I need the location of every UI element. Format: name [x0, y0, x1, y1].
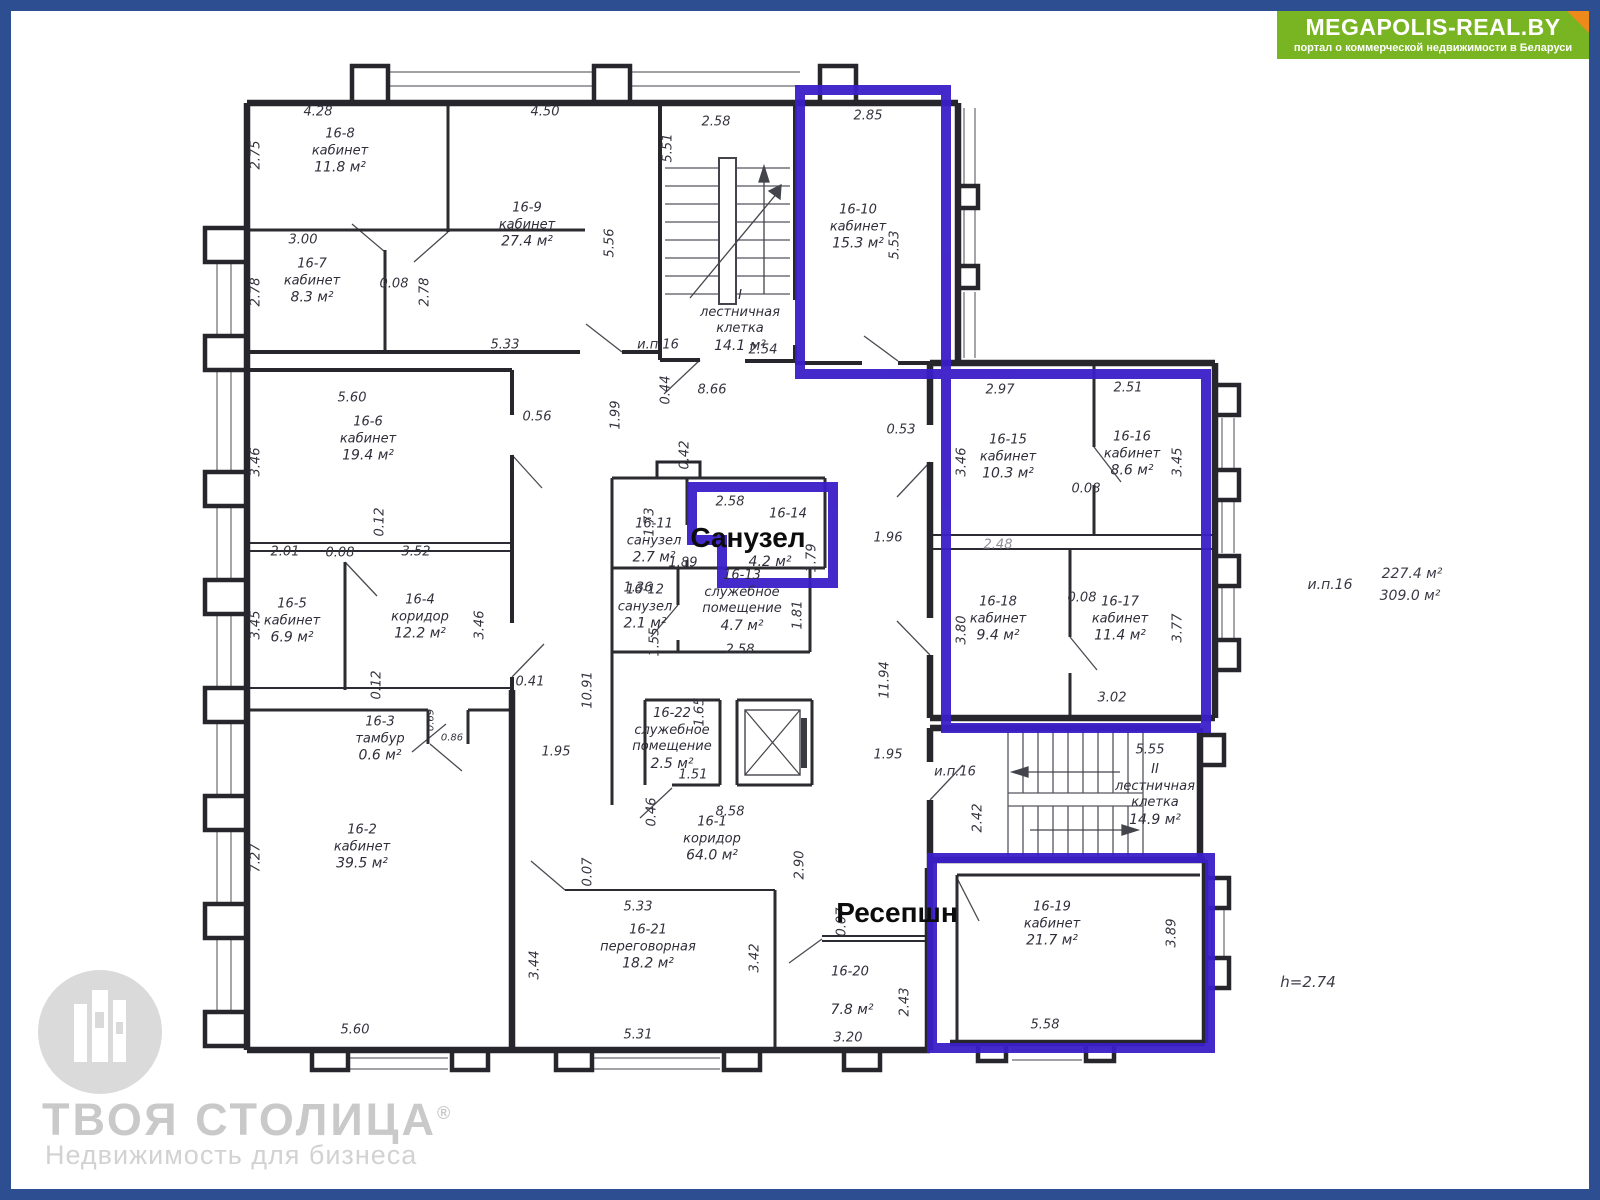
dimension-label: 1.89: [669, 556, 698, 571]
side-area-top: 227.4 м²: [1382, 566, 1443, 582]
dimension-label: 2.42: [971, 804, 986, 833]
dimension-label: 3.00: [289, 233, 318, 248]
dimension-label: 8.58: [716, 805, 745, 820]
dimension-label: 0.44: [659, 376, 674, 405]
room-label-16-7: 16-7кабинет8.3 м²: [284, 256, 340, 307]
dimension-label: 0.07: [581, 858, 596, 887]
dimension-label: 3.52: [402, 545, 431, 560]
dimension-label: 1.51: [679, 768, 708, 783]
dimension-label: 5.58: [1031, 1018, 1060, 1033]
dimension-label: 5.55: [1136, 743, 1165, 758]
dimension-label: 5.51: [661, 134, 676, 163]
dimension-label: 0.69: [426, 709, 437, 731]
dimension-label: 5.60: [338, 391, 367, 406]
dimension-label: 0.08: [1068, 591, 1097, 606]
room-label-16-21: 16-21переговорная18.2 м²: [600, 922, 696, 973]
dimension-label: 0.12: [373, 508, 388, 537]
dimension-label: 5.33: [491, 338, 520, 353]
room-label-16-3: 16-3тамбур0.6 м²: [355, 714, 404, 765]
dimension-label: 1.36: [624, 581, 653, 596]
room-label-16-16: 16-16кабинет8.6 м²: [1104, 429, 1160, 480]
logo-title: MEGAPOLIS-REAL.BY: [1305, 16, 1560, 39]
dimension-label: 2.58: [726, 643, 755, 658]
height-note: h=2.74: [1280, 973, 1335, 991]
dimension-label: 2.58: [716, 495, 745, 510]
room-label-16-18: 16-18кабинет9.4 м²: [970, 594, 1026, 645]
room-label-16-8: 16-8кабинет11.8 м²: [312, 126, 368, 177]
elevator-shaft: [745, 710, 807, 775]
dimension-label: 2.78: [249, 278, 264, 307]
sanuzel-overlay-label: Санузел: [690, 522, 805, 554]
dimension-label: 10.91: [581, 671, 596, 708]
room-label-16-15: 16-15кабинет10.3 м²: [980, 432, 1036, 483]
room-label-16-1: 16-1коридор64.0 м²: [683, 814, 741, 865]
dimension-label: 3.77: [1171, 614, 1186, 643]
room-label-16-13: 16-13служебноепомещение4.7 м²: [702, 568, 781, 636]
dimension-label: 2.58: [702, 115, 731, 130]
dimension-label: 1.96: [874, 531, 903, 546]
dimension-label: 3.20: [834, 1031, 863, 1046]
room-label-16-20-id: 16-20: [831, 965, 869, 980]
dimension-label: 0.41: [516, 675, 545, 690]
dimension-label: 2.85: [854, 109, 883, 124]
dimension-label: 3.44: [528, 951, 543, 980]
dimension-label: 2.78: [418, 278, 433, 307]
dimension-label: 3.02: [1098, 691, 1127, 706]
room-label-16-9: 16-9кабинет27.4 м²: [499, 200, 555, 251]
room-label-16-4: 16-4коридор12.2 м²: [391, 592, 449, 643]
dimension-label: 0.46: [645, 798, 660, 827]
dimension-label: 5.60: [341, 1023, 370, 1038]
staircase-1-stringer: [719, 158, 736, 304]
dimension-label: 3.42: [748, 944, 763, 973]
dimension-label: 2.75: [249, 141, 264, 170]
dimension-label: 3.46: [249, 448, 264, 477]
dimension-label: 3.45: [1171, 448, 1186, 477]
dimension-label: 0.86: [441, 733, 463, 744]
dimension-label: 0.56: [523, 410, 552, 425]
logo-subtitle: портал о коммерческой недвижимости в Бел…: [1294, 42, 1572, 54]
dimension-label: 0.08: [380, 277, 409, 292]
dimension-label: 0.12: [370, 671, 385, 700]
dimension-label: 1.81: [791, 601, 806, 630]
megapolis-logo[interactable]: MEGAPOLIS-REAL.BY портал о коммерческой …: [1277, 11, 1589, 59]
dimension-label: 0.53: [887, 423, 916, 438]
dimension-label: 4.28: [304, 105, 333, 120]
dimension-label: 1.65: [693, 698, 708, 727]
side-area-bottom: 309.0 м²: [1380, 588, 1441, 604]
floor-plan-page: 16-8кабинет11.8 м² 16-9кабинет27.4 м² 16…: [0, 0, 1600, 1200]
watermark-logo-icon: [38, 970, 162, 1094]
dimension-label: 2.97: [986, 383, 1015, 398]
room-label-16-5: 16-5кабинет6.9 м²: [264, 596, 320, 647]
dimension-label: 1.79: [805, 544, 820, 573]
dimension-label: 1.95: [542, 745, 571, 760]
dimension-label: 5.53: [888, 231, 903, 260]
dimension-label: и.п.16: [934, 765, 976, 780]
dimension-label: 5.56: [603, 229, 618, 258]
registered-mark-icon: ®: [437, 1103, 453, 1123]
dimension-label: 4.50: [531, 105, 560, 120]
logo-corner-fold-icon: [1567, 11, 1589, 33]
dimension-label: 2.43: [898, 988, 913, 1017]
room-label-16-19: 16-19кабинет21.7 м²: [1024, 899, 1080, 950]
room-label-16-20-area: 7.8 м²: [831, 1002, 874, 1018]
room-label-16-6: 16-6кабинет19.4 м²: [340, 414, 396, 465]
dimension-label: 0.42: [678, 441, 693, 470]
watermark-brand: ТВОЯ СТОЛИЦА®: [42, 1094, 453, 1146]
dimension-label: 3.46: [473, 611, 488, 640]
dimension-label: 11.94: [878, 661, 893, 698]
reception-overlay-label: Ресепшн: [836, 897, 958, 929]
room-label-staircase-2: IIлестничнаяклетка14.9 м²: [1115, 762, 1195, 830]
dimension-label: и.п.16: [637, 338, 679, 353]
dimension-label: 1.99: [609, 401, 624, 430]
dimension-label: 0.08: [326, 546, 355, 561]
room-label-16-17: 16-17кабинет11.4 м²: [1092, 594, 1148, 645]
dimension-label: 2.48: [984, 538, 1013, 553]
dimension-label: 3.80: [955, 616, 970, 645]
dimension-label: 0.08: [1072, 482, 1101, 497]
dimension-label: 3.45: [249, 611, 264, 640]
dimension-label: 2.90: [793, 851, 808, 880]
dimension-label: 2.01: [271, 545, 300, 560]
dimension-label: 3.46: [955, 448, 970, 477]
dimension-label: 8.66: [698, 383, 727, 398]
dimension-label: 5.33: [624, 900, 653, 915]
side-unit-label: и.п.16: [1308, 577, 1353, 593]
dimension-label: 2.54: [749, 343, 778, 358]
dimension-label: 1.55: [648, 628, 663, 657]
dimension-label: 5.31: [624, 1028, 653, 1043]
dimension-label: 1.73: [643, 508, 658, 537]
dimension-label: 7.27: [249, 844, 264, 873]
room-label-16-10: 16-10кабинет15.3 м²: [830, 202, 886, 253]
room-label-16-14-id: 16-14: [769, 507, 807, 522]
watermark-tagline: Недвижимость для бизнеса: [45, 1140, 417, 1171]
dimension-label: 3.89: [1165, 919, 1180, 948]
dimension-label: 2.51: [1114, 381, 1143, 396]
room-label-16-2: 16-2кабинет39.5 м²: [334, 822, 390, 873]
dimension-label: 1.95: [874, 748, 903, 763]
